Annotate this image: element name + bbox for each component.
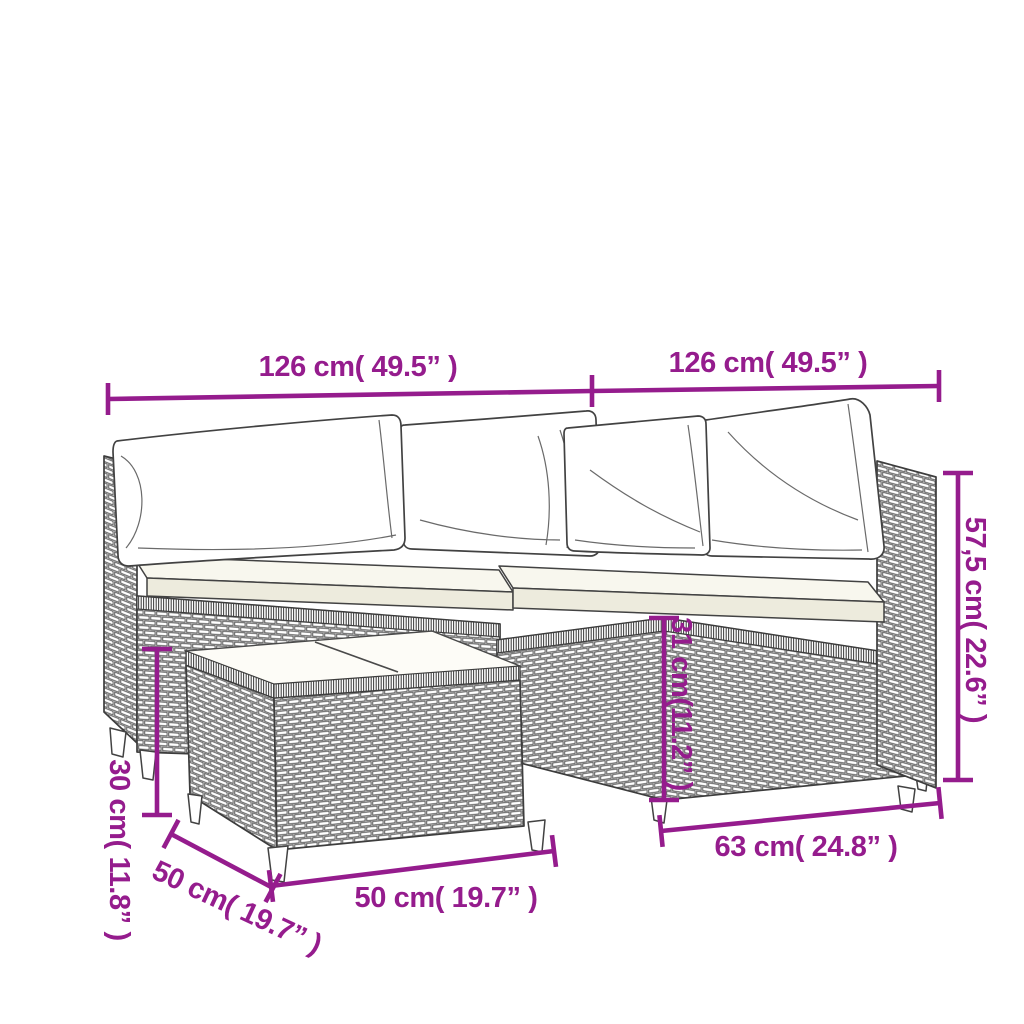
dimension-label: 126 cm( 49.5” ) xyxy=(259,351,458,383)
sofa-left-front-foot xyxy=(140,750,156,780)
dimension-sofa-right-width: 126 cm( 49.5” ) xyxy=(592,347,939,407)
coffee-table xyxy=(186,631,545,882)
furniture-illustration xyxy=(104,399,936,882)
diagram-canvas: 126 cm( 49.5” ) 126 cm( 49.5” ) 57,5 cm(… xyxy=(0,0,1024,1024)
dimension-label: 63 cm( 24.8” ) xyxy=(715,831,898,863)
sofa-armrest xyxy=(877,461,936,788)
table-right-face xyxy=(274,680,524,850)
tick-mark xyxy=(164,820,179,848)
dimension-label: 50 cm( 19.7” ) xyxy=(355,882,538,914)
pillow-right-outer xyxy=(700,399,884,559)
dimension-label: 57,5 cm( 22.6” ) xyxy=(959,517,991,723)
dimension-label: 30 cm( 11.8” ) xyxy=(103,759,135,940)
back-pillows xyxy=(113,399,884,566)
tick-mark xyxy=(938,787,941,819)
dimension-line xyxy=(592,386,939,391)
product-dimension-diagram: 126 cm( 49.5” ) 126 cm( 49.5” ) 57,5 cm(… xyxy=(0,0,1024,1024)
sofa-left-back-foot xyxy=(110,728,126,757)
dimension-label: 126 cm( 49.5” ) xyxy=(669,347,868,379)
table-foot-left xyxy=(188,794,202,824)
dimension-label: 31 cm(11.2” ) xyxy=(665,617,697,791)
tick-mark xyxy=(659,815,662,847)
table-foot-right xyxy=(528,820,545,852)
dimension-line xyxy=(661,803,940,831)
dimension-line xyxy=(108,391,592,399)
pillow-right-inner xyxy=(564,416,710,555)
pillow-left-outer xyxy=(113,415,405,566)
dimension-backrest-height: 57,5 cm( 22.6” ) xyxy=(943,473,991,780)
dimension-sofa-left-width: 126 cm( 49.5” ) xyxy=(108,351,592,415)
dimension-line xyxy=(271,851,554,886)
tick-mark xyxy=(552,835,556,867)
